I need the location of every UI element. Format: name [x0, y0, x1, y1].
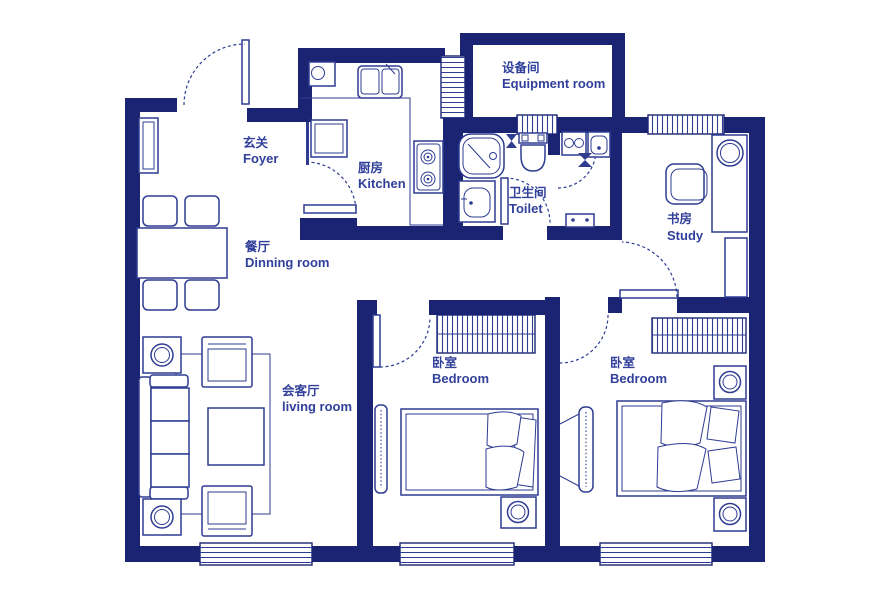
- bath-mat: [566, 214, 594, 227]
- wall-kitchen-top: [298, 48, 445, 63]
- study-cabinet-top: [712, 135, 747, 232]
- label-study-en: Study: [667, 228, 704, 243]
- wall-divider-bedrooms: [545, 297, 560, 546]
- wall-bedroom-mid-top: [429, 300, 560, 315]
- label-bedroom-right-en: Bedroom: [610, 371, 667, 386]
- kitchen-cabinet: [309, 62, 335, 86]
- armchair: [202, 337, 252, 387]
- wall-top-b: [557, 117, 648, 133]
- wall-partition-kitchen-foyer: [306, 122, 309, 165]
- bedroom-middle-door-leaf: [373, 315, 380, 367]
- coffee-table: [208, 408, 264, 465]
- label-bedroom-mid-en: Bedroom: [432, 371, 489, 386]
- wall-top-a: [443, 117, 517, 133]
- label-bedroom-mid-zh: 卧室: [432, 355, 458, 370]
- study-door: [620, 242, 678, 298]
- shoe-cabinet: [139, 118, 158, 173]
- dining-chair: [185, 280, 219, 310]
- side-table: [143, 337, 181, 373]
- study-cabinet-bottom: [725, 238, 747, 297]
- washbasin: [459, 181, 495, 222]
- window-study-top: [648, 115, 724, 134]
- label-foyer-en: Foyer: [243, 151, 278, 166]
- wall-bottom-d: [712, 546, 765, 562]
- label-kitchen-zh: 厨房: [358, 160, 383, 175]
- kitchen-door: [304, 162, 356, 213]
- label-toilet-en: Toilet: [509, 201, 543, 216]
- washing-machine: [562, 132, 586, 155]
- label-equipment-en: Equipment room: [502, 76, 605, 91]
- room-bedroom-middle: [375, 315, 538, 528]
- wall-foyer-top-left: [125, 98, 177, 112]
- label-study-zh: 书房: [667, 211, 692, 226]
- wall-right: [749, 117, 765, 562]
- label-foyer-zh: 玄关: [243, 135, 269, 150]
- window-toilet-top: [517, 115, 557, 134]
- wall-kitchen-bottom: [300, 218, 357, 240]
- dining-chair: [143, 196, 177, 226]
- bedroom-right-door-arc: [560, 315, 608, 363]
- floor-drain-icon: [506, 134, 517, 148]
- wall-divider-living-bedroom: [357, 300, 373, 546]
- wall-bottom-a: [125, 546, 200, 562]
- toilet-bowl: [519, 133, 547, 171]
- bed: [401, 409, 538, 495]
- wall-bedroom-mid-top-stub: [357, 300, 377, 315]
- label-kitchen-en: Kitchen: [358, 176, 406, 191]
- kitchen-door-leaf: [304, 205, 356, 213]
- label-dining-zh: 餐厅: [244, 239, 271, 254]
- window-bedroom-mid-bottom: [400, 543, 514, 565]
- wardrobe: [652, 318, 746, 353]
- wall-equipment-top: [460, 33, 625, 45]
- label-bedroom-right-zh: 卧室: [610, 355, 636, 370]
- label-dining-en: Dinning room: [245, 255, 330, 270]
- nightstand: [714, 498, 746, 531]
- room-kitchen: [300, 62, 443, 225]
- desk: [666, 164, 707, 204]
- bedroom-middle-door-arc: [380, 317, 430, 367]
- stove: [414, 141, 443, 193]
- bedroom-middle-door: [373, 315, 430, 367]
- dining-table: [137, 228, 227, 278]
- radiator: [375, 405, 387, 493]
- toilet-door-leaf: [501, 178, 508, 224]
- dining-chair: [143, 280, 177, 310]
- study-door-leaf: [620, 290, 678, 298]
- armchair: [202, 486, 252, 536]
- wall-study-bottom: [677, 297, 765, 313]
- entry-door-arc: [184, 44, 245, 105]
- dining-chair: [185, 196, 219, 226]
- kitchen-sink: [358, 64, 402, 98]
- entry-door-leaf: [242, 40, 249, 104]
- label-living-en: living room: [282, 399, 352, 414]
- entry-door: [184, 40, 249, 105]
- bedroom-right-door: [560, 315, 608, 363]
- label-living-zh: 会客厅: [282, 383, 320, 398]
- wall-bottom-b: [312, 546, 400, 562]
- window-living-bottom: [200, 543, 312, 565]
- sofa: [139, 375, 189, 499]
- room-dining: [137, 196, 227, 310]
- wall-laundry-study: [610, 133, 622, 240]
- wall-bottom-c: [514, 546, 600, 562]
- window-kitchen-equipment: [441, 56, 465, 118]
- label-toilet-zh: 卫生间: [509, 185, 547, 200]
- nightstand: [501, 497, 536, 528]
- wall-hall-top-a: [357, 226, 503, 240]
- wall-toilet-laundry-stub: [548, 133, 560, 155]
- room-foyer: [139, 118, 158, 173]
- wall-foyer-top-right: [247, 108, 302, 122]
- room-living: [139, 337, 270, 536]
- bed: [617, 401, 746, 496]
- floor-plan: 玄关 Foyer 厨房 Kitchen 设备间 Equipment room 卫…: [0, 0, 895, 604]
- side-table: [143, 499, 181, 535]
- fridge: [311, 120, 347, 157]
- bedding: [486, 412, 536, 490]
- room-bedroom-right: [560, 318, 746, 531]
- nightstand: [714, 366, 746, 399]
- wall-equipment-right: [612, 33, 625, 117]
- wall-left: [125, 98, 140, 562]
- window-bedroom-right-bottom: [600, 543, 712, 565]
- study-door-arc: [622, 242, 677, 297]
- wardrobe: [437, 315, 535, 353]
- radiator: [560, 407, 593, 492]
- wall-door-stub: [608, 297, 622, 313]
- label-equipment-zh: 设备间: [502, 60, 540, 75]
- bathtub: [459, 134, 504, 178]
